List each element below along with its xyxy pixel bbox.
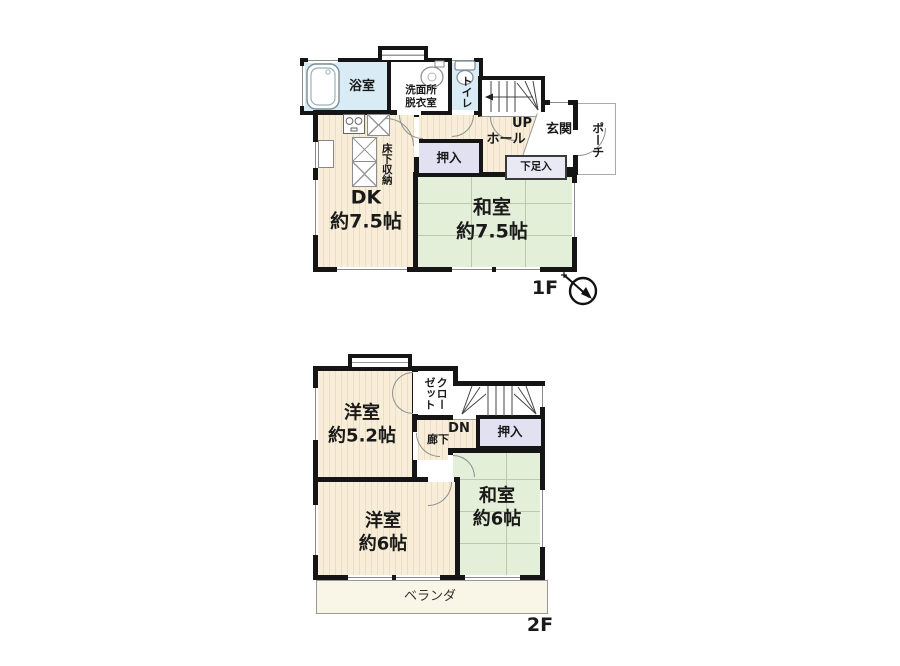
genkan-right-wall-upper bbox=[573, 100, 578, 130]
closet-opening bbox=[413, 372, 418, 414]
stairs-down-icon bbox=[458, 386, 540, 416]
floor1-caption: 1F bbox=[532, 277, 558, 301]
bath-side-window bbox=[300, 66, 305, 106]
washitsu-2f-label: 和室 約6帖 bbox=[473, 486, 522, 531]
western-room-6-label: 洋室 約6帖 bbox=[359, 511, 408, 556]
oshiire-1f-label: 押入 bbox=[436, 150, 461, 166]
hall-label: ホール bbox=[486, 132, 525, 148]
stairs-up-icon bbox=[483, 81, 540, 112]
western-room-6-side-window bbox=[313, 505, 318, 555]
kitchen-counter-icon bbox=[352, 137, 377, 162]
washitsu-2f-side-window bbox=[540, 490, 545, 547]
western-room-bay-window bbox=[348, 354, 412, 367]
stove-icon bbox=[343, 114, 365, 134]
western-room-6-bottom-window-right bbox=[396, 575, 440, 580]
kitchen-counter-icon bbox=[352, 161, 377, 187]
floor2-caption: 2F bbox=[527, 614, 553, 638]
porch-label: ポーチ bbox=[590, 122, 603, 158]
floorplan-canvas: 浴室 洗面所 脱衣室 トイレ UP ホール 玄関 ポーチ 押入 下足入 DK 約… bbox=[0, 0, 900, 666]
bathtub-icon bbox=[306, 63, 340, 110]
genkan-window bbox=[550, 100, 568, 105]
western-room-6-bottom-window-left bbox=[348, 575, 392, 580]
closet-2f-label: クローゼット bbox=[423, 373, 447, 413]
stairs-up-label: UP bbox=[512, 116, 532, 132]
washitsu-1f-label: 和室 約7.5帖 bbox=[456, 196, 528, 244]
washitsu1f-side-window bbox=[572, 183, 577, 237]
refrigerator-icon bbox=[318, 140, 334, 168]
shoe-box-label: 下足入 bbox=[520, 160, 552, 173]
staircase-2f-window bbox=[540, 386, 545, 407]
washitsu1f-bottom-window-right bbox=[496, 267, 540, 272]
dk-bottom-window bbox=[337, 267, 407, 272]
underfloor-storage-label: 床下収納 bbox=[380, 143, 392, 185]
corridor-label: 廊下 bbox=[427, 433, 449, 447]
dk-side-window-lower bbox=[313, 180, 318, 235]
washitsu-2f-bottom-window bbox=[465, 575, 520, 580]
oshiire-2f-label: 押入 bbox=[497, 424, 522, 440]
western-room-5-2-label: 洋室 約5.2帖 bbox=[328, 403, 396, 448]
washroom-label: 洗面所 脱衣室 bbox=[405, 84, 437, 110]
veranda-label: ベランダ bbox=[404, 589, 456, 605]
washroom-bay-window bbox=[378, 46, 428, 60]
washitsu1f-bottom-window-left bbox=[452, 267, 492, 272]
western-room-5-2-side-window bbox=[313, 388, 318, 440]
toilet-label: トイレ bbox=[460, 76, 472, 109]
stairs-down-label: DN bbox=[448, 421, 470, 437]
dk-label: DK 約7.5帖 bbox=[330, 186, 402, 234]
bath-label: 浴室 bbox=[349, 79, 375, 95]
genkan-label: 玄関 bbox=[546, 122, 572, 138]
north-arrow-compass-icon bbox=[560, 271, 600, 307]
